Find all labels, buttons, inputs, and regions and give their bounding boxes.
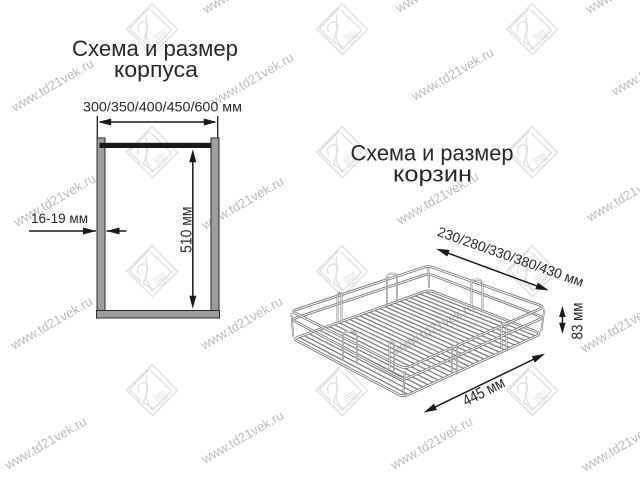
svg-text:16-19 мм: 16-19 мм [31,211,88,226]
svg-text:корпуса: корпуса [114,57,199,82]
svg-text:300/350/400/450/600 мм: 300/350/400/450/600 мм [83,100,242,115]
svg-text:510 мм: 510 мм [178,207,195,254]
svg-text:83 мм: 83 мм [570,303,587,340]
svg-text:корзин: корзин [393,161,472,186]
